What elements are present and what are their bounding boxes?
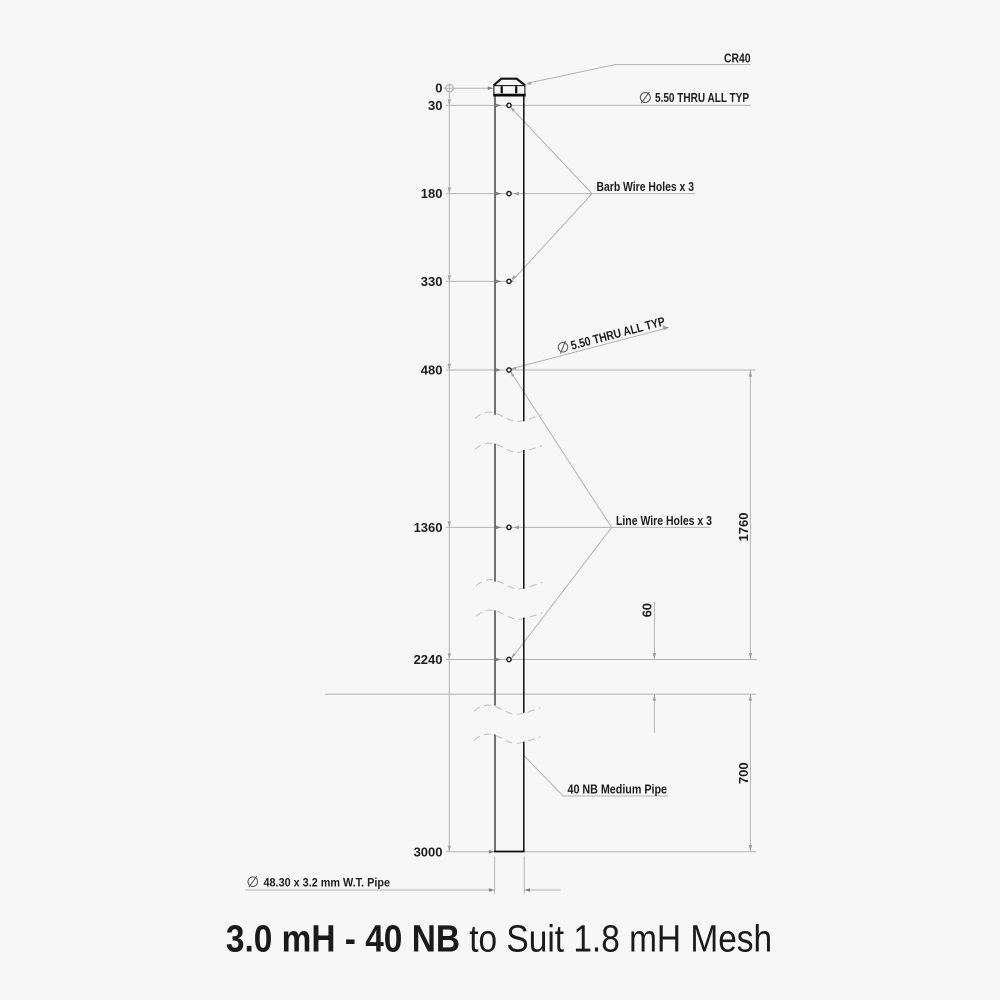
svg-text:3000: 3000 — [414, 844, 443, 859]
svg-text:480: 480 — [421, 363, 443, 378]
svg-text:40 NB Medium Pipe: 40 NB Medium Pipe — [568, 783, 668, 797]
svg-text:48.30 x 3.2 mm W.T. Pipe: 48.30 x 3.2 mm W.T. Pipe — [264, 876, 391, 890]
svg-text:3.0 mH - 40 NB to Suit 1.8 mH: 3.0 mH - 40 NB to Suit 1.8 mH Mesh — [226, 918, 772, 960]
svg-text:1760: 1760 — [736, 513, 751, 542]
svg-text:0: 0 — [435, 81, 442, 96]
svg-text:5.50 THRU ALL TYP: 5.50 THRU ALL TYP — [569, 314, 666, 352]
svg-text:180: 180 — [421, 186, 443, 201]
svg-text:330: 330 — [421, 274, 443, 289]
svg-text:700: 700 — [736, 762, 751, 784]
svg-text:60: 60 — [640, 603, 655, 617]
svg-text:30: 30 — [428, 98, 442, 113]
svg-text:CR40: CR40 — [724, 52, 751, 66]
svg-text:5.50 THRU ALL TYP: 5.50 THRU ALL TYP — [655, 91, 749, 105]
svg-text:Line Wire Holes x 3: Line Wire Holes x 3 — [616, 514, 712, 528]
svg-text:1360: 1360 — [414, 520, 443, 535]
svg-text:Barb Wire Holes x 3: Barb Wire Holes x 3 — [597, 180, 695, 194]
svg-text:2240: 2240 — [414, 652, 443, 667]
